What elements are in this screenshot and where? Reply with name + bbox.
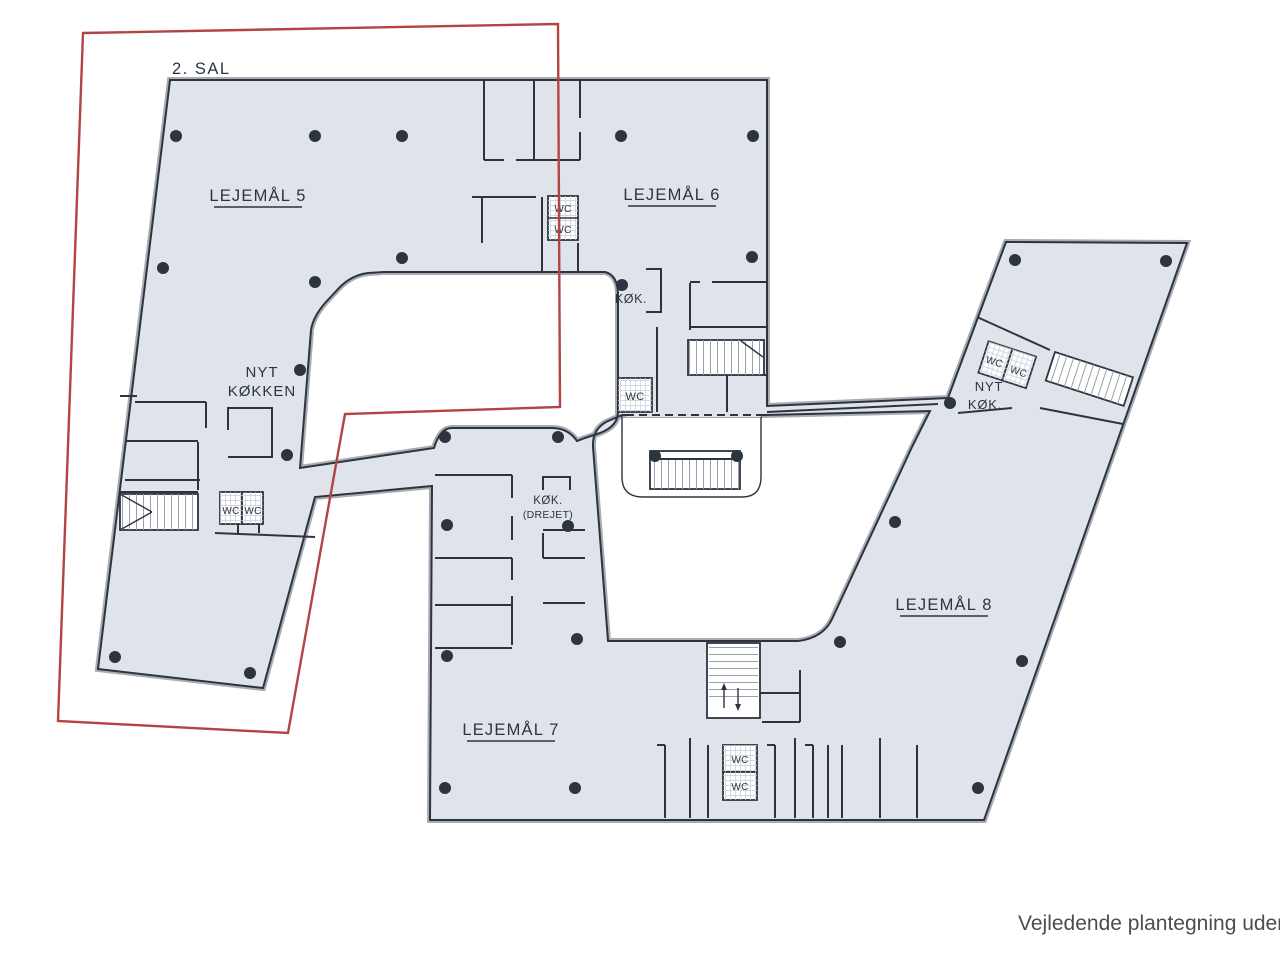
- stair-lejemal5-treads: [120, 494, 198, 530]
- column-dot: [244, 667, 256, 679]
- column-dot: [1016, 655, 1028, 667]
- column-dot: [616, 279, 628, 291]
- column-dot: [615, 130, 627, 142]
- plan-caption: Vejledende plantegning uden a: [1018, 912, 1280, 936]
- floor-title: 2. SAL: [172, 60, 231, 78]
- column-dot: [157, 262, 169, 274]
- kok-drejet-label-line2: (DREJET): [523, 509, 573, 521]
- column-dot: [439, 782, 451, 794]
- column-dot: [731, 450, 743, 462]
- wc-label-lejemal7-1: WC: [731, 755, 748, 766]
- nyt-kokken-label-line1: NYT: [246, 364, 279, 381]
- column-dot: [649, 450, 661, 462]
- column-dot: [309, 130, 321, 142]
- column-dot: [294, 364, 306, 376]
- column-dot: [170, 130, 182, 142]
- column-dot: [834, 636, 846, 648]
- column-dot: [441, 519, 453, 531]
- column-dot: [889, 516, 901, 528]
- column-dot: [944, 397, 956, 409]
- column-dot: [552, 431, 564, 443]
- nyt-kokken-label-line2: KØKKEN: [228, 383, 297, 400]
- column-dot: [441, 650, 453, 662]
- column-dot: [309, 276, 321, 288]
- column-dot: [562, 520, 574, 532]
- unit-label-lejemal5: LEJEMÅL 5: [209, 186, 306, 205]
- column-dot: [1160, 255, 1172, 267]
- unit-label-lejemal7: LEJEMÅL 7: [462, 720, 559, 739]
- lobby-stair-treads: [650, 459, 740, 489]
- column-dot: [747, 130, 759, 142]
- column-dot: [972, 782, 984, 794]
- nyt-kok-label-line1: NYT: [975, 379, 1003, 394]
- wc-label-wing-2: WC: [244, 506, 261, 517]
- wc-label-top-1: WC: [554, 204, 571, 215]
- wc-label-wing-1: WC: [222, 506, 239, 517]
- column-dot: [569, 782, 581, 794]
- stair-lejemal6-treads: [688, 340, 764, 375]
- nyt-kok-label-line2: KØK.: [968, 397, 1002, 412]
- stair-lejemal7-treads: [709, 645, 758, 701]
- column-dot: [109, 651, 121, 663]
- wc-label-top-2: WC: [554, 225, 571, 236]
- kok-drejet-label-line1: KØK.: [533, 495, 562, 507]
- column-dot: [396, 130, 408, 142]
- column-dot: [1009, 254, 1021, 266]
- wc-label-lejemal7-2: WC: [731, 782, 748, 793]
- unit-label-lejemal8: LEJEMÅL 8: [895, 595, 992, 614]
- column-dot: [746, 251, 758, 263]
- column-dot: [281, 449, 293, 461]
- column-dot: [571, 633, 583, 645]
- unit-label-lejemal6: LEJEMÅL 6: [623, 185, 720, 204]
- kok-label-lejemal6: KØK.: [615, 292, 647, 306]
- column-dot: [396, 252, 408, 264]
- column-dot: [439, 431, 451, 443]
- floor-plan-svg: WC WC: [0, 0, 1280, 960]
- wc-label-lejemal6: WC: [626, 391, 645, 403]
